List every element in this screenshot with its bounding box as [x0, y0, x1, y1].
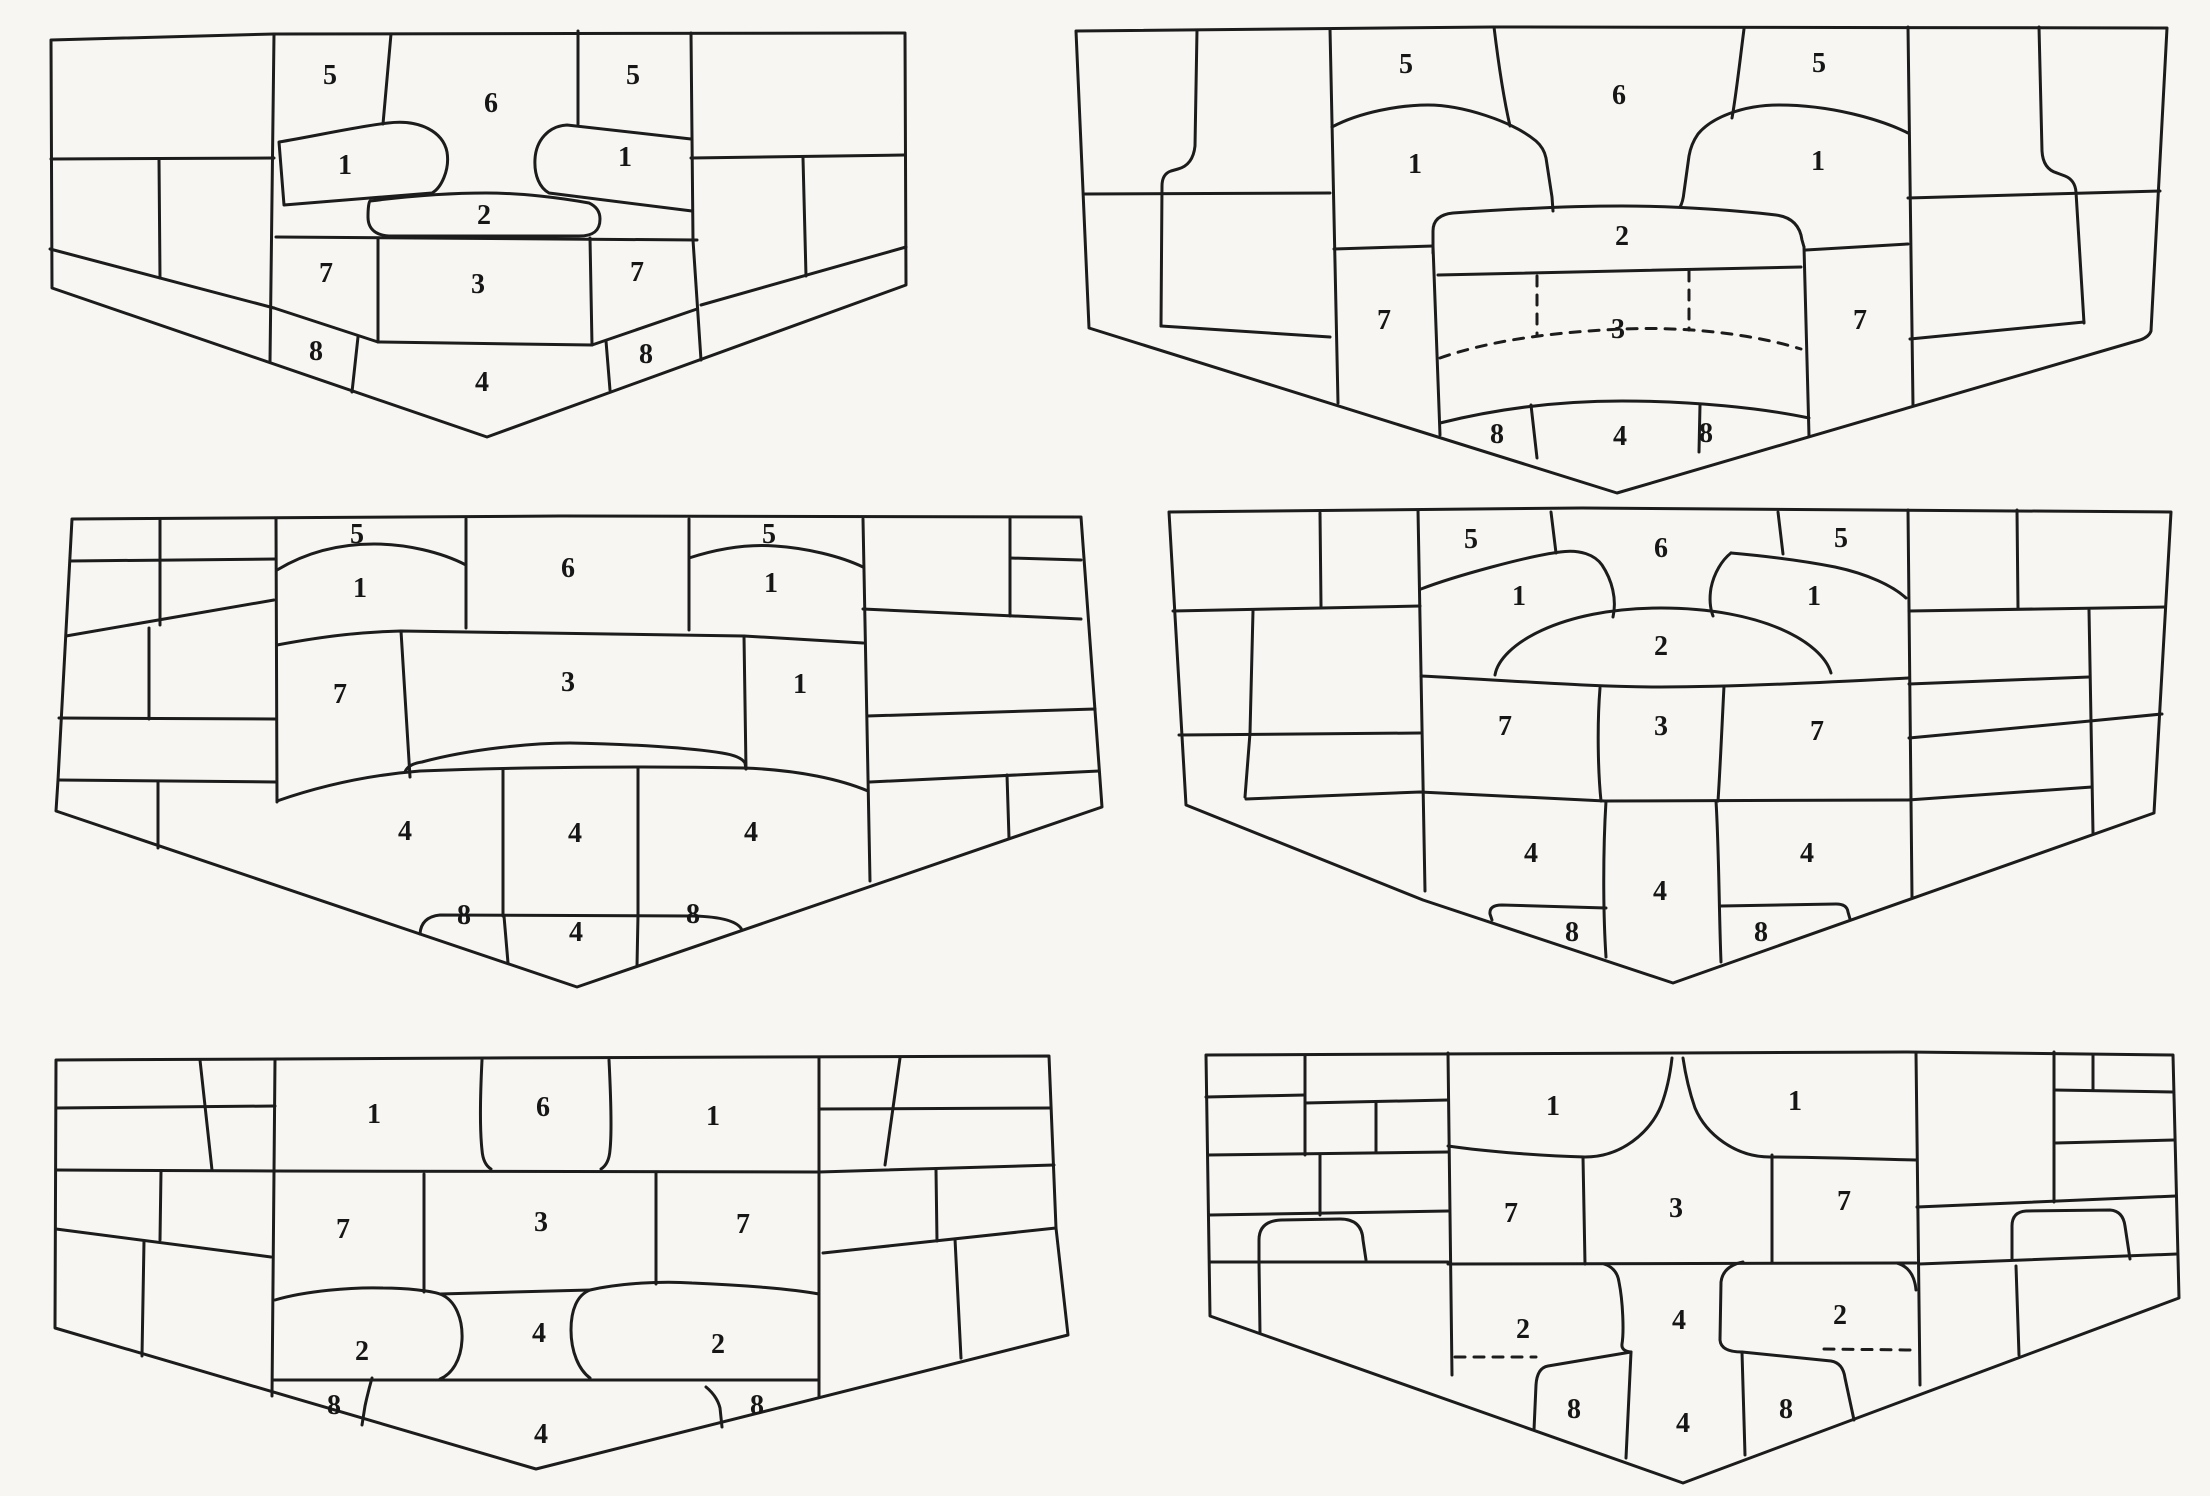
svg-text:1: 1 — [353, 573, 367, 604]
svg-text:1: 1 — [1807, 581, 1821, 612]
svg-text:1: 1 — [1546, 1091, 1560, 1122]
svg-text:4: 4 — [532, 1318, 546, 1349]
svg-text:8: 8 — [1567, 1394, 1581, 1425]
svg-text:8: 8 — [1490, 419, 1504, 450]
svg-text:7: 7 — [336, 1214, 350, 1245]
svg-text:8: 8 — [457, 900, 471, 931]
svg-text:2: 2 — [1615, 221, 1629, 252]
svg-text:8: 8 — [639, 339, 653, 370]
svg-text:2: 2 — [1516, 1314, 1530, 1345]
svg-text:2: 2 — [1654, 631, 1668, 662]
svg-text:1: 1 — [618, 142, 632, 173]
svg-text:4: 4 — [1676, 1408, 1690, 1439]
svg-text:8: 8 — [686, 899, 700, 930]
svg-text:6: 6 — [561, 553, 575, 584]
svg-text:8: 8 — [1754, 917, 1768, 948]
svg-text:1: 1 — [1408, 149, 1422, 180]
svg-text:7: 7 — [1837, 1186, 1851, 1217]
svg-text:1: 1 — [793, 669, 807, 700]
svg-text:7: 7 — [736, 1209, 750, 1240]
svg-text:5: 5 — [1399, 49, 1413, 80]
svg-text:1: 1 — [1811, 146, 1825, 177]
svg-text:8: 8 — [1565, 917, 1579, 948]
svg-text:8: 8 — [750, 1390, 764, 1421]
svg-text:3: 3 — [1669, 1193, 1683, 1224]
svg-text:4: 4 — [534, 1419, 548, 1450]
svg-text:7: 7 — [1498, 711, 1512, 742]
svg-text:2: 2 — [711, 1329, 725, 1360]
svg-text:6: 6 — [484, 88, 498, 119]
svg-text:5: 5 — [1812, 48, 1826, 79]
svg-text:4: 4 — [398, 816, 412, 847]
svg-text:4: 4 — [1613, 421, 1627, 452]
svg-text:4: 4 — [1800, 838, 1814, 869]
svg-text:7: 7 — [630, 257, 644, 288]
svg-text:7: 7 — [1810, 716, 1824, 747]
svg-text:1: 1 — [1512, 581, 1526, 612]
svg-text:5: 5 — [1834, 523, 1848, 554]
svg-text:4: 4 — [475, 367, 489, 398]
svg-text:5: 5 — [350, 519, 364, 550]
svg-text:3: 3 — [534, 1207, 548, 1238]
svg-text:6: 6 — [1612, 80, 1626, 111]
svg-text:4: 4 — [568, 818, 582, 849]
svg-text:7: 7 — [319, 258, 333, 289]
svg-text:8: 8 — [1699, 418, 1713, 449]
svg-text:4: 4 — [744, 817, 758, 848]
svg-text:5: 5 — [1464, 524, 1478, 555]
svg-text:8: 8 — [309, 336, 323, 367]
svg-text:5: 5 — [323, 60, 337, 91]
svg-text:2: 2 — [355, 1336, 369, 1367]
svg-text:1: 1 — [706, 1101, 720, 1132]
svg-text:3: 3 — [1654, 711, 1668, 742]
svg-text:6: 6 — [536, 1092, 550, 1123]
svg-text:3: 3 — [1611, 314, 1625, 345]
svg-text:8: 8 — [327, 1390, 341, 1421]
svg-text:1: 1 — [338, 150, 352, 181]
svg-text:7: 7 — [1853, 305, 1867, 336]
svg-text:4: 4 — [1524, 838, 1538, 869]
svg-text:3: 3 — [471, 269, 485, 300]
svg-text:4: 4 — [1672, 1305, 1686, 1336]
svg-text:1: 1 — [367, 1099, 381, 1130]
svg-text:7: 7 — [1504, 1198, 1518, 1229]
svg-text:5: 5 — [626, 60, 640, 91]
svg-text:2: 2 — [1833, 1300, 1847, 1331]
svg-text:4: 4 — [569, 917, 583, 948]
svg-text:6: 6 — [1654, 533, 1668, 564]
svg-text:8: 8 — [1779, 1394, 1793, 1425]
svg-text:7: 7 — [1377, 305, 1391, 336]
svg-text:5: 5 — [762, 519, 776, 550]
svg-text:4: 4 — [1653, 876, 1667, 907]
svg-text:3: 3 — [561, 667, 575, 698]
svg-text:1: 1 — [1788, 1086, 1802, 1117]
svg-text:2: 2 — [477, 200, 491, 231]
svg-text:1: 1 — [764, 568, 778, 599]
svg-text:7: 7 — [333, 679, 347, 710]
